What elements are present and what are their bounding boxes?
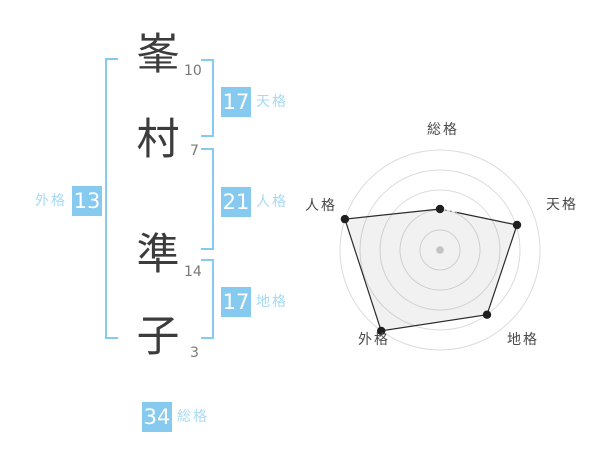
radar-axis-label-jinkaku: 人格 [305,198,337,214]
chikaku-bracket [201,259,214,339]
tenkaku-bracket [201,59,214,137]
jinkaku-bracket [201,148,214,250]
stroke-count-1: 10 [184,64,202,78]
radar-point-tenkaku [513,221,521,229]
tenkaku-value-badge: 17 [221,87,251,117]
chikaku-label: 地格 [256,294,288,310]
radar-point-chikaku [483,311,491,319]
name-character-4: 子 [136,316,180,359]
radar-axis-label-soukaku: 総格 [427,122,459,138]
radar-center-dot [436,246,444,254]
radar-axis-label-tenkaku: 天格 [546,197,578,213]
radar-point-soukaku [436,205,444,213]
jinkaku-value-badge: 21 [221,187,251,217]
seimei-handan-result: 峯 10 村 7 準 14 子 3 17 天格 21 人格 17 地格 外格 1… [0,0,600,470]
jinkaku-label: 人格 [256,194,288,210]
fortune-radar-chart: 総格天格地格外格人格 [290,113,590,363]
radar-axis-label-gaikaku: 外格 [358,332,390,348]
radar-axis-label-chikaku: 地格 [507,332,539,348]
radar-point-jinkaku [341,215,349,223]
soukaku-value-badge: 34 [142,402,172,432]
stroke-count-2: 7 [190,144,199,158]
soukaku-label: 総格 [177,409,209,425]
gaikaku-bracket [105,58,118,339]
radar-svg: 総格天格地格外格人格 [290,113,590,363]
name-character-2: 村 [136,119,180,162]
tenkaku-label: 天格 [256,94,288,110]
radar-area-fill [345,209,517,331]
name-character-1: 峯 [136,34,180,77]
name-character-3: 準 [136,234,180,277]
stroke-count-3: 14 [184,265,202,279]
gaikaku-label: 外格 [34,193,67,209]
stroke-count-4: 3 [190,346,199,360]
chikaku-value-badge: 17 [221,287,251,317]
gaikaku-value-badge: 13 [72,186,102,216]
